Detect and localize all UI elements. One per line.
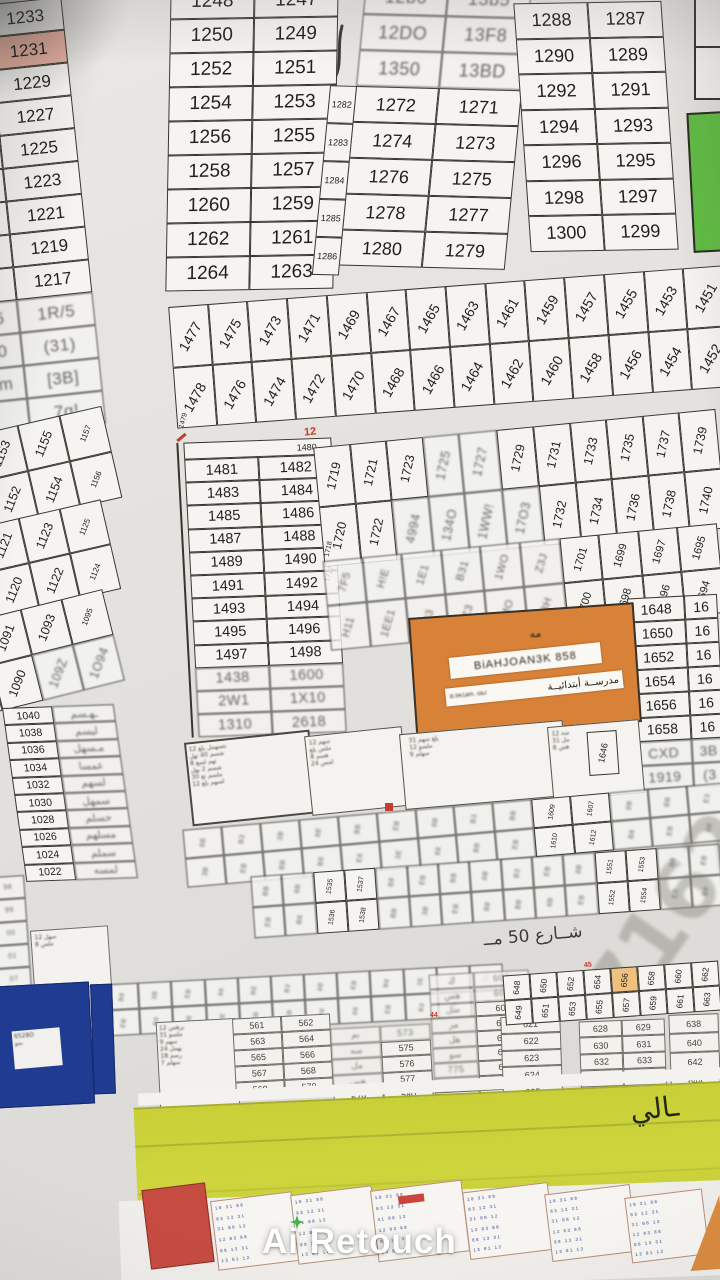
- plot-cell: 1260: [167, 188, 252, 223]
- plot-cell: 16: [690, 714, 720, 740]
- plot-cell: H!E: [362, 554, 406, 603]
- plot-cell: 1262: [166, 222, 251, 257]
- plot-cell: 655: [585, 993, 614, 1020]
- plot-cell: 1729: [497, 426, 539, 489]
- annotation-table: سهم 12ملس يلعهسم 8لمس 24: [304, 726, 410, 816]
- plot-row: 12721271: [353, 86, 522, 126]
- plot-cell: 1299: [602, 214, 678, 251]
- plot-cell: 1455: [604, 271, 648, 335]
- plot-cell: B8: [612, 818, 653, 850]
- plot-cell: 657: [612, 991, 641, 1018]
- plot-cell: 3B: [185, 855, 226, 887]
- plot-cell: 1247: [254, 0, 339, 18]
- plot-cell: Z3J: [520, 538, 564, 587]
- school-sign-top: BiAHJOAN3K 858: [449, 642, 602, 679]
- plot-cell: 1471: [287, 295, 331, 359]
- plot-cell: B3: [271, 974, 305, 1002]
- plot-cell: B31: [441, 546, 485, 595]
- plot-cell: 663: [693, 985, 720, 1012]
- plot-cell: 1293: [595, 107, 671, 144]
- plot-row: 135013BD: [356, 50, 525, 90]
- plot-cell: B3: [221, 823, 262, 855]
- plot-cell: 1256: [168, 120, 253, 155]
- plot-cell: 8B: [563, 852, 596, 885]
- plot-cell: 3B: [138, 981, 172, 1009]
- plot-cell: EB: [171, 979, 205, 1007]
- plot-cell: 1036: [7, 741, 59, 760]
- plot-cell: EB: [371, 995, 405, 1023]
- plot-cell: 1701: [559, 535, 603, 584]
- plot-cell: 1474: [252, 359, 296, 423]
- plot-cell: 628: [579, 1020, 623, 1038]
- plot-table-1265-1286: 12b613b512DO13F8135013BD1272127112741273…: [338, 0, 533, 282]
- plot-cell: 1296: [523, 144, 599, 181]
- plot-cell: 8E: [299, 816, 340, 848]
- plot-cell: 659: [639, 989, 668, 1016]
- plot-cell: 8B: [304, 972, 338, 1000]
- plot-cell: EB: [407, 863, 440, 896]
- cadastral-map: 1233123112293122761225412232122120121918…: [0, 0, 720, 1280]
- plot-cell: 1452: [688, 326, 720, 390]
- plot-cell: 1652: [630, 643, 688, 670]
- plot-cell: 16: [689, 690, 720, 716]
- plot-cell: 1609: [531, 796, 572, 828]
- plot-cell: 1291: [592, 72, 668, 109]
- plot-cell: 1248: [170, 0, 255, 19]
- plot-cell: 1739: [679, 409, 720, 472]
- plot-cell: 1451: [683, 265, 720, 329]
- plot-cell: 1456: [608, 332, 652, 396]
- plot-cell: 1038: [5, 724, 57, 743]
- plot-cell: 88: [204, 978, 238, 1006]
- plot-cell: 1536: [315, 901, 348, 934]
- plot-row: 12DO13F8: [360, 14, 529, 54]
- plot-cell: 640: [669, 1032, 720, 1053]
- plot-row: 12501249: [169, 16, 338, 53]
- plot-cell: 1491: [190, 573, 265, 599]
- plot-cell: 1721: [350, 441, 392, 504]
- plot-cell: 1459: [525, 277, 569, 341]
- plot-cell: 1476: [212, 362, 256, 426]
- plot-cell: EB: [376, 810, 417, 842]
- plot-cell: 1278: [342, 194, 428, 232]
- plot-cell: 660: [664, 962, 693, 989]
- plot-cell: 633: [623, 1051, 667, 1069]
- plot-cell: 1290: [516, 38, 592, 75]
- plot-cell: مـسهل: [57, 739, 121, 759]
- plot-cell: 1719: [313, 444, 355, 507]
- plot-cell: 1300: [528, 215, 604, 252]
- plot-cell: 1472: [292, 356, 336, 420]
- plot-cell: 1538: [346, 899, 379, 932]
- plot-cell: H11: [327, 602, 371, 651]
- plot-cell: 1733: [570, 419, 612, 482]
- plot-cell: 8B: [183, 826, 224, 858]
- plot-row: 12781277: [342, 194, 511, 234]
- plot-cell: 1438: [195, 665, 270, 691]
- plot-cell: لسهم: [62, 774, 126, 794]
- plot-cell: 1252: [169, 52, 254, 87]
- plot-cell: لمسه: [74, 861, 138, 881]
- plot-cell: 1481: [184, 457, 259, 483]
- plot-cell: 1280: [339, 230, 425, 268]
- plot-cell: 648: [503, 974, 532, 1001]
- plot-cell: BB: [503, 888, 536, 921]
- plot-cell: 1282: [326, 85, 357, 124]
- plot-row: 1022لمسه: [24, 861, 138, 882]
- plot-cell: 1468: [371, 350, 415, 414]
- plot-cell: 1251: [253, 50, 338, 85]
- plot-cell: 1600: [269, 663, 344, 689]
- plot-cell: 1485: [187, 503, 262, 529]
- plot-row: 12581257: [167, 153, 336, 190]
- red-mark-12: 12: [303, 425, 316, 438]
- plot-cell: 1487: [188, 527, 263, 553]
- plot-cell: 1277: [425, 196, 511, 234]
- plot-cell: 631: [622, 1035, 666, 1053]
- plot-cell: CXD: [635, 739, 693, 766]
- plot-column-small: 9899000107: [0, 875, 32, 992]
- plot-cell: 1264: [165, 256, 250, 291]
- plot-cell: 98: [0, 875, 26, 900]
- plot-cell: 3B: [691, 738, 720, 764]
- plot-cell: B8: [375, 866, 408, 899]
- plot-cell: 1735: [606, 416, 648, 479]
- plot-cell: 629: [622, 1019, 666, 1037]
- plot-cell: 638: [668, 1013, 719, 1034]
- plot-cell: EB: [565, 883, 598, 916]
- school-mark: مه: [529, 627, 542, 641]
- plot-cell: 1461: [485, 280, 529, 344]
- plot-cell: 1350: [356, 50, 442, 88]
- plot-cell: 1723: [386, 437, 428, 500]
- plot-cell: 1289: [590, 36, 666, 73]
- yellow-band-label: ـالي: [628, 1089, 680, 1127]
- plot-cell: 1249: [253, 16, 338, 51]
- plot-cell: 622: [501, 1032, 562, 1051]
- mini-plot-table: 18 31 8883 12 3131 88 1212 83 8888 13 31…: [462, 1182, 556, 1260]
- plot-cell: 632: [580, 1053, 624, 1071]
- plot-cell: 1028: [17, 811, 69, 830]
- plot-cell: 13BD: [439, 52, 525, 90]
- plot-cell: 623: [501, 1049, 562, 1068]
- mini-plot-table: 18 31 8883 12 3131 88 1212 83 8888 13 31…: [544, 1184, 638, 1262]
- green-plot: [686, 111, 720, 253]
- plot-cell: 1022: [24, 863, 76, 882]
- plot-cell: 651: [531, 997, 560, 1024]
- plot-row: 12761275: [346, 158, 515, 198]
- plot-cell: 1699: [598, 531, 642, 580]
- plot-cell: BB: [250, 874, 283, 907]
- plot-cell: 1271: [436, 88, 522, 126]
- plot-cell: 1EE1: [366, 598, 410, 647]
- plot-cell: حسلم: [66, 808, 130, 828]
- plot-cell: 1254: [168, 86, 253, 121]
- plot-cell: 1030: [14, 793, 66, 812]
- plot-cell: 1497: [194, 642, 269, 668]
- plot-cell: 88: [338, 997, 372, 1025]
- plot-cell: 1034: [9, 758, 61, 777]
- plot-row: 12621261: [166, 221, 335, 258]
- plot-row: 12961295: [523, 143, 673, 181]
- plot-cell: ليسم: [54, 721, 118, 741]
- plot-cell: 1295: [597, 143, 673, 180]
- plot-cell: سملم: [71, 843, 135, 863]
- plot-cell: B8: [370, 969, 404, 997]
- plot-cell: 1463: [445, 283, 489, 347]
- plot-cell: 1537: [344, 868, 377, 901]
- edge-cells: [694, 0, 720, 100]
- plot-cell: 1284: [319, 161, 350, 200]
- plot-cell: 1462: [490, 341, 534, 405]
- plot-cell: 1658: [633, 715, 691, 742]
- plot-cell: 1465: [406, 286, 450, 350]
- plot-cell: 662: [691, 961, 720, 988]
- plot-cell: 658: [637, 964, 666, 991]
- plot-cell: 1297: [600, 178, 676, 215]
- map-photo: 1233123112293122761225412232122120121918…: [0, 0, 720, 1280]
- plot-cell: BB: [378, 896, 411, 929]
- plot-row: 12881287: [513, 1, 663, 39]
- plot-cell: 650: [529, 972, 558, 999]
- plot-cell: 1469: [327, 292, 371, 356]
- plot-cell: 16: [685, 618, 719, 644]
- plot-cell: 1453: [643, 268, 687, 332]
- plot-row: 12901289: [516, 36, 666, 74]
- plot-cell: 1032: [12, 776, 64, 795]
- plot-cell: 1040: [2, 706, 54, 725]
- blue-plot-strip: [90, 984, 116, 1095]
- plot-cell: 1483: [185, 480, 260, 506]
- plot-cell: 1489: [189, 550, 264, 576]
- plot-cell: 1285: [315, 199, 346, 238]
- plot-cell: EB: [495, 828, 536, 860]
- plot-cell-1646: 1646: [587, 730, 620, 776]
- plot-cell: 00: [0, 921, 29, 946]
- plot-cell: 653: [558, 995, 587, 1022]
- plot-cell: 16: [688, 666, 720, 692]
- plot-cell: 1156: [70, 452, 122, 507]
- plot-cell: 1275: [429, 160, 515, 198]
- plot-cell: 8B: [415, 806, 456, 838]
- plot-cell: 1697: [638, 527, 682, 576]
- plot-cell: 1466: [410, 347, 454, 411]
- plot-cell: 2W1: [196, 689, 271, 715]
- plot-cell: 1026: [19, 828, 71, 847]
- plot-cell: BB: [493, 799, 534, 831]
- plot-cell: 1607: [570, 793, 611, 825]
- plot-cell: BE: [237, 976, 271, 1004]
- plot-cell: ـهـسم: [52, 704, 116, 724]
- plot-cell: 1E1: [401, 550, 445, 599]
- plot-cell: 01: [0, 944, 30, 969]
- plot-cell: 1272: [353, 86, 439, 124]
- plot-row: 12541253: [168, 85, 337, 122]
- plot-cell: 7F5: [323, 557, 367, 606]
- plot-cell: 1727: [459, 430, 503, 493]
- plot-row: 12521251: [169, 50, 338, 87]
- plot-cell: 1464: [450, 344, 494, 408]
- plot-row: 12801279: [339, 230, 508, 270]
- plot-cell: 1258: [167, 154, 252, 189]
- plot-cell: 1551: [594, 850, 627, 883]
- plot-row: 12921291: [518, 72, 668, 110]
- plot-table-1287-1300: 1288128712901289129212911294129312961295…: [513, 1, 678, 252]
- annotation-small: سهل 12ملس 8: [30, 925, 112, 990]
- plot-cell: 1279: [422, 232, 508, 270]
- plot-cell: EB: [440, 892, 473, 925]
- plot-cell: 1X10: [270, 686, 345, 712]
- plot-cell: EB: [532, 855, 565, 888]
- blue-plot-large: 6528Oىمو: [0, 982, 95, 1109]
- plot-cell: 1470: [331, 353, 375, 417]
- plot-cell: سمهل: [64, 791, 128, 811]
- plot-cell: 8B: [469, 859, 502, 892]
- plot-cell: 1535: [313, 870, 346, 903]
- plot-row: 12601259: [167, 187, 336, 224]
- plot-cell: 649: [504, 999, 533, 1026]
- plot-cell: 573: [380, 1023, 431, 1041]
- plot-cell: 1650: [628, 620, 686, 647]
- plot-cell: 1294: [521, 109, 597, 146]
- plot-cell: 1288: [513, 2, 589, 39]
- annotation-table: نتسهمل يلع 12شسم 40 تهلتهم لسع 8شسم 2 يه…: [184, 730, 318, 827]
- plot-cell: 12DO: [360, 14, 446, 52]
- plot-cell: 8B: [282, 872, 315, 905]
- red-plot: [141, 1182, 214, 1269]
- plot-cell: 1460: [529, 338, 573, 402]
- plot-cell: 3B: [260, 820, 301, 852]
- red-mark-44: 44: [430, 1012, 438, 1019]
- plot-cell: 1495: [193, 619, 268, 645]
- plot-cell: 1273: [432, 124, 518, 162]
- plot-cell: 654: [583, 968, 612, 995]
- red-square: [385, 803, 393, 811]
- plot-cell: 1286: [312, 237, 343, 276]
- plot-cell: B8: [471, 890, 504, 923]
- plot-cell: B3: [500, 857, 533, 890]
- plot-cell: 3B: [409, 894, 442, 927]
- plot-cell: 1WO: [480, 542, 524, 591]
- plot-cell: 8B: [609, 789, 650, 821]
- plot-cell: 8B: [534, 886, 567, 919]
- plot-cell: عمسا: [59, 756, 123, 776]
- plot-cell: 1454: [648, 329, 692, 393]
- plot-cell: 1458: [569, 335, 613, 399]
- plot-cell: 16: [686, 642, 720, 668]
- plot-row: 12641263: [165, 255, 334, 292]
- plot-cell: 1477: [168, 304, 212, 368]
- plot-cell: 1287: [587, 1, 663, 38]
- plot-cell: 1731: [533, 423, 575, 486]
- plot-cell: 99: [0, 898, 27, 923]
- plot-cell: BB: [338, 813, 379, 845]
- plot-cell: B8: [284, 903, 317, 936]
- plot-cell: 1283: [323, 123, 354, 162]
- plot-cell: 1024: [22, 845, 74, 864]
- plot-cell: 1250: [169, 18, 254, 53]
- plot-row: 12741273: [349, 122, 518, 162]
- plot-cell: 1473: [247, 298, 291, 362]
- plot-cell: 1292: [518, 73, 594, 110]
- mini-plot-table: 18 31 8883 12 3131 88 1212 83 8888 13 31…: [624, 1188, 709, 1263]
- plot-table-1247-1264: 1248124712501249125212511254125312561255…: [165, 0, 338, 292]
- plot-cell: 661: [666, 987, 695, 1014]
- plot-cell: 16: [684, 594, 718, 620]
- plot-cell: 1737: [642, 412, 684, 475]
- plot-cell: 630: [579, 1036, 623, 1054]
- plot-cell: 1276: [346, 158, 432, 196]
- plot-cell: 1467: [366, 289, 410, 353]
- plot-cell: 1475: [208, 301, 252, 365]
- plot-cell: 652: [556, 970, 585, 997]
- watermark: Ai Retouch: [262, 1222, 457, 1262]
- plot-cell: 1493: [191, 596, 266, 622]
- plot-cell: 1457: [564, 274, 608, 338]
- plot-row: 12941293: [521, 107, 671, 145]
- plot-cell: BB: [438, 861, 471, 894]
- plot-cell: مسلهم: [69, 826, 133, 846]
- red-mark-45: 45: [584, 962, 592, 970]
- plot-cell: 1274: [349, 122, 435, 160]
- annotation-table: يلع سهم 31ملسو 12سهلم 9: [399, 720, 569, 810]
- plot-cell: 1610: [534, 825, 575, 857]
- plot-table-1217-1233: 1233123112293122761225412232122120121918…: [0, 0, 108, 436]
- plot-row: 12561255: [168, 119, 337, 156]
- plot-cell: 1298: [526, 179, 602, 216]
- plot-row: 12981297: [526, 178, 676, 216]
- plot-row: 13001299: [528, 214, 678, 252]
- school-plot: مه BiAHJOAN3K 858 B.9e1am. oaJ مدرســة أ…: [408, 602, 642, 737]
- plot-cell: 656: [610, 966, 639, 993]
- plot-table-1022-1040: 1040ـهـسم1038ليسم1036مـسهل1034عمسا1032لس…: [2, 704, 138, 882]
- plot-cell: 1612: [573, 821, 614, 853]
- plot-cell: B3: [454, 803, 495, 835]
- plot-cell: 1648: [627, 596, 685, 623]
- plot-band-1088s: 10891088109110901093109Z10951O94: [0, 589, 125, 721]
- blue-plot-label: 6528Oىمو: [12, 1027, 63, 1069]
- plot-cell: 1253: [252, 85, 337, 120]
- plot-cell: 1695: [677, 523, 720, 572]
- plot-cell: EB: [253, 905, 286, 938]
- plot-cell: EB: [337, 971, 371, 999]
- red-tick: [176, 433, 186, 442]
- plot-cell: 1725: [422, 434, 464, 497]
